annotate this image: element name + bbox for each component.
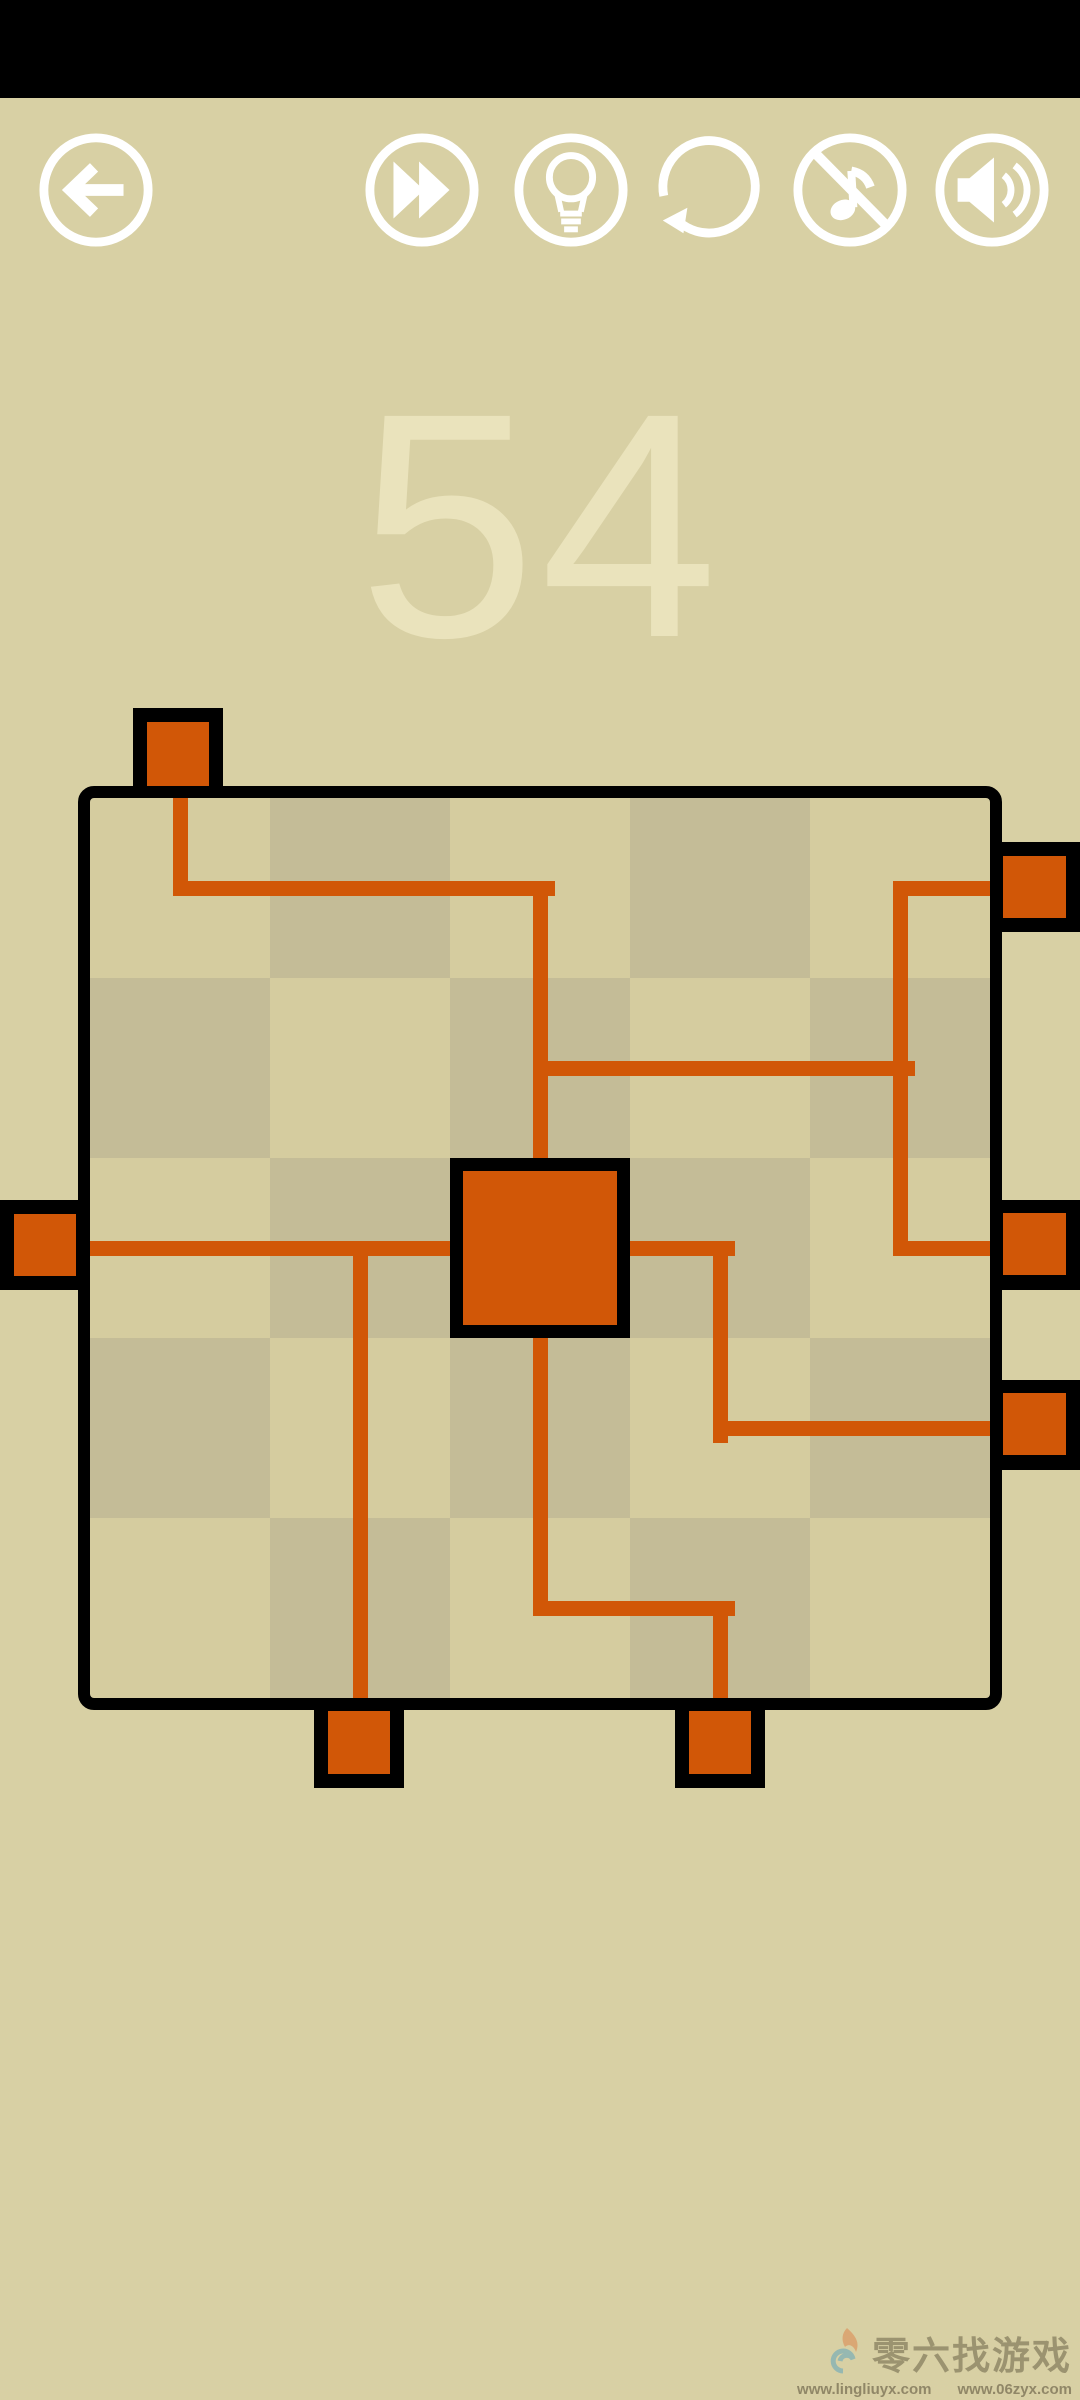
wire-segment <box>533 1601 735 1616</box>
hint-button[interactable] <box>512 131 630 249</box>
music-off-button[interactable] <box>791 131 909 249</box>
watermark-logo-icon <box>823 2327 867 2379</box>
wire-segment <box>533 1061 915 1076</box>
back-button[interactable] <box>37 131 155 249</box>
fast-forward-icon <box>363 131 481 249</box>
wire-segment <box>893 1241 990 1256</box>
center-block[interactable] <box>450 1158 630 1338</box>
wire-segment <box>533 1338 548 1616</box>
edge-block-right-1[interactable] <box>990 842 1080 932</box>
wire-segment <box>353 1241 368 1698</box>
board-cell <box>90 978 270 1158</box>
edge-block-top-1[interactable] <box>133 708 223 798</box>
wire-segment <box>713 1241 728 1443</box>
watermark-url-2: www.06zyx.com <box>958 2381 1073 2398</box>
sound-on-button[interactable] <box>933 131 1051 249</box>
edge-block-fill <box>1003 1393 1066 1455</box>
edge-block-fill <box>328 1711 390 1774</box>
edge-block-right-3[interactable] <box>990 1380 1080 1470</box>
edge-block-bottom-2[interactable] <box>675 1698 765 1788</box>
restart-button[interactable] <box>651 131 769 249</box>
board-cell <box>630 798 810 978</box>
undo-icon <box>651 131 769 249</box>
edge-block-fill <box>689 1711 751 1774</box>
edge-block-fill <box>1003 856 1066 918</box>
skip-level-button[interactable] <box>363 131 481 249</box>
watermark-brand: 零六找游戏 <box>872 2325 1072 2380</box>
lightbulb-icon <box>512 131 630 249</box>
edge-block-fill <box>14 1214 76 1276</box>
edge-block-left-1[interactable] <box>0 1200 90 1290</box>
edge-block-bottom-1[interactable] <box>314 1698 404 1788</box>
level-number: 54 <box>0 365 1080 685</box>
speaker-icon <box>933 131 1051 249</box>
wire-segment <box>893 881 908 1256</box>
wire-segment <box>173 881 555 896</box>
music-off-icon <box>791 131 909 249</box>
arrow-left-icon <box>37 131 155 249</box>
game-screen: 54 零六找游戏 www.lingliuyx.com www.06zyx.com <box>0 0 1080 2400</box>
wire-segment <box>90 1241 450 1256</box>
wire-segment <box>893 881 990 896</box>
edge-block-fill <box>147 722 209 786</box>
board-cell <box>90 1338 270 1518</box>
wire-segment <box>713 1421 990 1436</box>
edge-block-right-2[interactable] <box>990 1200 1080 1290</box>
wire-segment <box>713 1601 728 1698</box>
watermark: 零六找游戏 www.lingliuyx.com www.06zyx.com <box>797 2325 1072 2398</box>
wire-segment <box>533 881 548 1158</box>
edge-block-fill <box>1003 1213 1066 1275</box>
status-bar <box>0 0 1080 98</box>
watermark-url-1: www.lingliuyx.com <box>797 2381 931 2398</box>
